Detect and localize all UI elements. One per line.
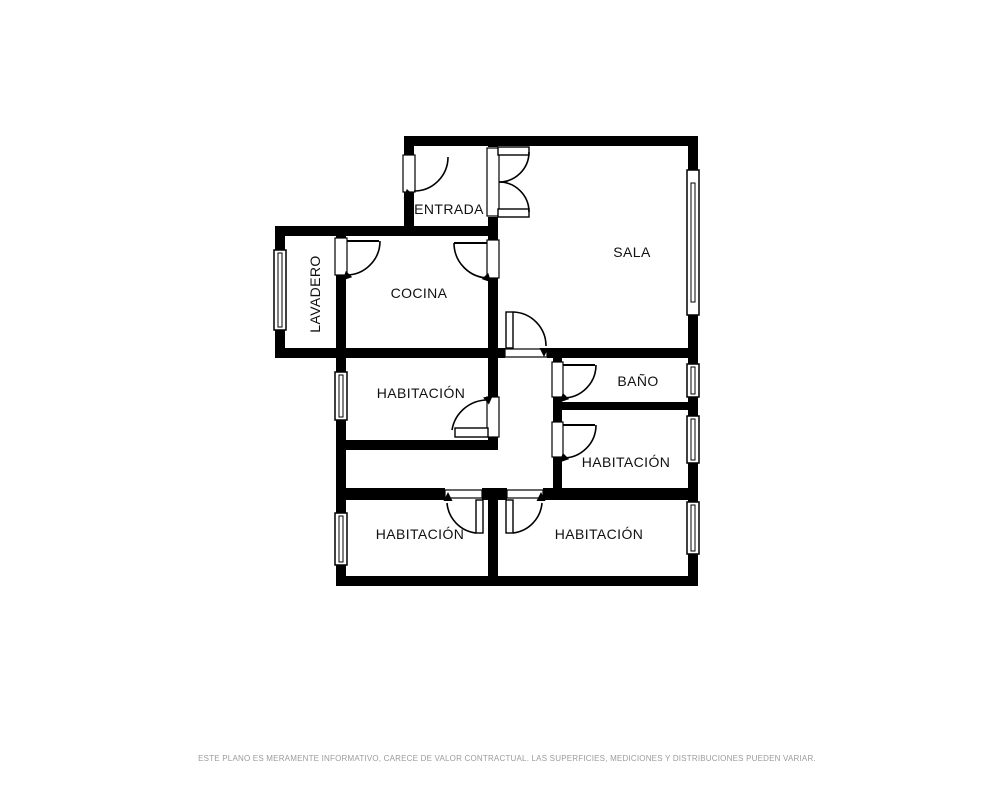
door-frame (403, 155, 415, 192)
canvas-background (0, 0, 1000, 800)
room-label-bano: BAÑO (617, 373, 658, 389)
room-label-sala: SALA (613, 244, 651, 260)
wall-bano-bottom (553, 402, 698, 410)
window-habitacion-centro-derecha (687, 416, 699, 463)
window-bano (687, 364, 699, 397)
door-leaf-top (498, 147, 529, 155)
wall-hall-top (275, 348, 698, 358)
room-label-habitacion-centro-izquierda: HABITACIÓN (377, 385, 466, 401)
door-leaf (476, 500, 483, 533)
wall-top (404, 136, 698, 146)
floor-plan: ENTRADA SALA COCINA LAVADERO HABITACIÓN … (0, 0, 1000, 800)
room-label-entrada: ENTRADA (414, 201, 484, 217)
door-frame (552, 422, 563, 457)
window-sala (687, 170, 699, 315)
window-habitacion-centro-izquierda (335, 372, 347, 420)
door-leaf (506, 500, 513, 533)
room-label-habitacion-centro-derecha: HABITACIÓN (582, 454, 671, 470)
door-sill (445, 490, 482, 498)
door-leaf (455, 428, 488, 437)
wall-habitacion-centro-bottom (336, 440, 498, 450)
room-label-cocina: COCINA (391, 285, 448, 301)
wall-entrada-cocina (275, 226, 498, 236)
door-frame (552, 362, 563, 397)
floor-plan-page: ENTRADA SALA COCINA LAVADERO HABITACIÓN … (0, 0, 1000, 800)
door-sill (507, 490, 543, 498)
window-habitacion-inferior-izquierda (335, 513, 347, 565)
door-frame (487, 240, 499, 278)
door-leaf (506, 312, 513, 348)
room-label-habitacion-inferior-izquierda: HABITACIÓN (376, 526, 465, 542)
door-frame (335, 238, 347, 275)
room-label-habitacion-inferior-derecha: HABITACIÓN (555, 526, 644, 542)
wall-bottom (336, 576, 698, 586)
window-habitacion-inferior-derecha (687, 502, 699, 554)
door-leaf-bottom (498, 209, 529, 217)
footer-disclaimer: ESTE PLANO ES MERAMENTE INFORMATIVO, CAR… (198, 754, 816, 763)
door-frame (487, 148, 499, 216)
window-lavadero (274, 250, 286, 330)
wall-bottom-divider (488, 500, 498, 576)
room-label-lavadero: LAVADERO (307, 255, 323, 332)
